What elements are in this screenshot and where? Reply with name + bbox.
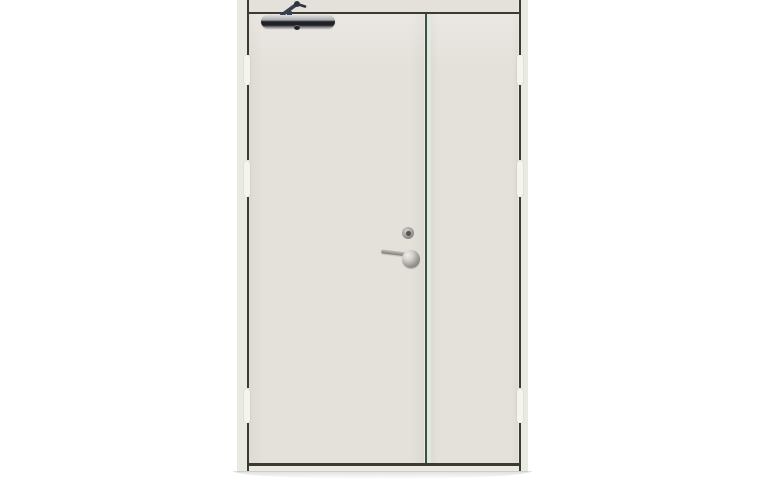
handle-rose <box>402 250 420 268</box>
meeting-stile-gap <box>425 14 428 463</box>
door-bottom-edge-line <box>247 463 521 466</box>
meeting-stile-highlight <box>427 14 431 463</box>
hinge-gap <box>244 55 250 85</box>
door-leaf-inactive <box>431 14 518 463</box>
hinge-gap <box>517 389 523 423</box>
left-edge-line <box>247 85 249 160</box>
hinge-gap <box>244 389 250 423</box>
hinge-gap <box>517 161 523 197</box>
right-edge-line <box>519 197 521 388</box>
hinge-gap <box>244 161 250 197</box>
door-closer-valve <box>294 25 300 30</box>
right-edge-line <box>519 423 521 471</box>
left-edge-line <box>247 423 249 471</box>
right-edge-line <box>519 0 521 55</box>
product-photo: Door closer arm <box>0 0 768 480</box>
right-edge-line <box>519 85 521 160</box>
left-edge-line <box>247 0 249 55</box>
lock-cylinder <box>402 227 414 239</box>
door-leaf-active <box>249 14 424 463</box>
left-edge-line <box>247 197 249 388</box>
floor-shadow <box>233 471 532 479</box>
hinge-gap <box>517 55 523 85</box>
